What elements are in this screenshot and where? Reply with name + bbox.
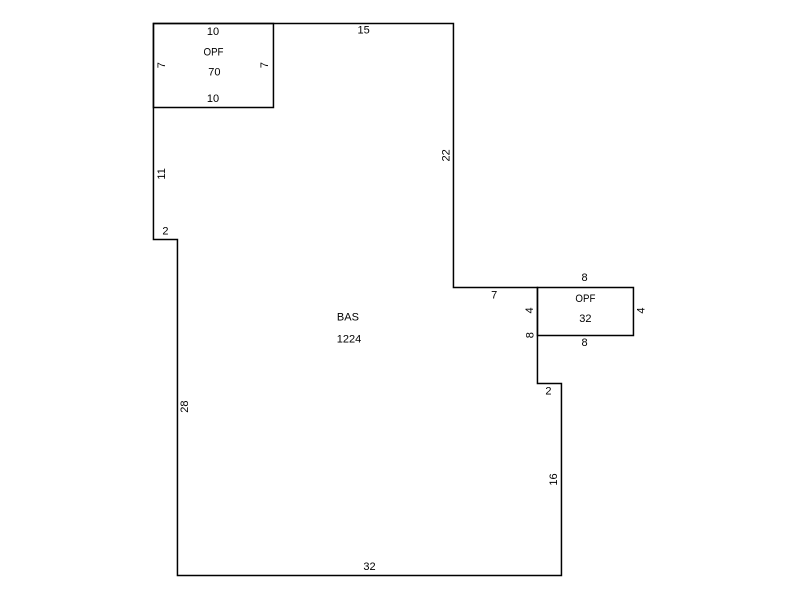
svg-text:8: 8 bbox=[582, 272, 588, 284]
svg-text:1224: 1224 bbox=[337, 333, 361, 345]
svg-text:28: 28 bbox=[179, 400, 191, 412]
svg-text:10: 10 bbox=[207, 26, 219, 38]
svg-text:32: 32 bbox=[579, 313, 591, 325]
svg-text:22: 22 bbox=[440, 149, 452, 161]
svg-text:OPF: OPF bbox=[575, 293, 595, 305]
svg-text:7: 7 bbox=[491, 290, 497, 302]
svg-text:8: 8 bbox=[582, 337, 588, 349]
svg-text:11: 11 bbox=[156, 168, 168, 179]
svg-text:2: 2 bbox=[545, 385, 551, 397]
svg-text:2: 2 bbox=[162, 225, 168, 237]
svg-text:70: 70 bbox=[208, 67, 220, 79]
svg-text:8: 8 bbox=[525, 332, 537, 338]
svg-text:15: 15 bbox=[357, 25, 369, 37]
svg-text:16: 16 bbox=[548, 473, 560, 485]
svg-text:4: 4 bbox=[636, 307, 648, 313]
svg-text:10: 10 bbox=[207, 93, 219, 105]
svg-text:7: 7 bbox=[156, 62, 168, 68]
svg-text:BAS: BAS bbox=[337, 312, 359, 324]
svg-text:7: 7 bbox=[259, 62, 271, 68]
svg-text:32: 32 bbox=[363, 561, 375, 573]
svg-text:4: 4 bbox=[524, 307, 536, 313]
svg-text:OPF: OPF bbox=[204, 47, 224, 59]
